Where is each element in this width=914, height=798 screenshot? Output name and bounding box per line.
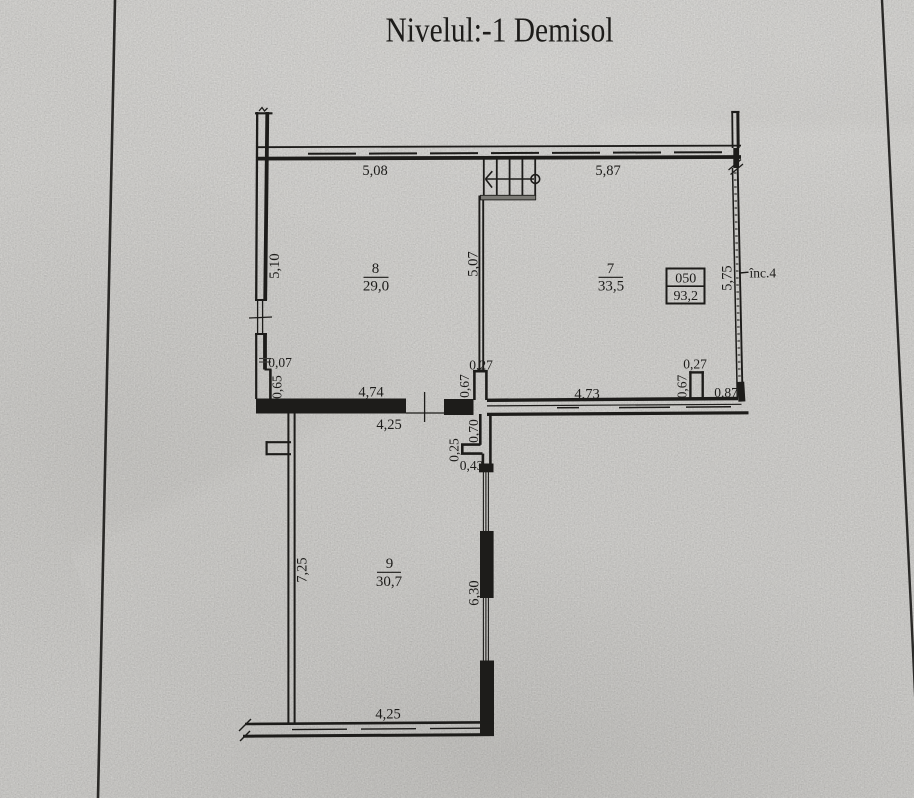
svg-text:0,67: 0,67 [457, 374, 472, 398]
svg-text:5,10: 5,10 [267, 253, 283, 278]
svg-text:050: 050 [675, 272, 696, 287]
svg-text:33,5: 33,5 [598, 279, 624, 295]
svg-text:0,27: 0,27 [469, 358, 493, 373]
svg-text:7,25: 7,25 [295, 557, 311, 582]
svg-text:5,07: 5,07 [466, 251, 482, 276]
svg-text:0,07: 0,07 [268, 355, 292, 370]
svg-text:4,74: 4,74 [358, 385, 384, 401]
svg-text:înc.4: înc.4 [749, 266, 777, 281]
svg-text:5,87: 5,87 [595, 163, 620, 179]
svg-text:5,75: 5,75 [720, 265, 736, 290]
svg-text:0,65: 0,65 [270, 375, 285, 399]
svg-text:5,08: 5,08 [362, 163, 387, 179]
svg-text:8: 8 [372, 261, 380, 277]
svg-text:0,67: 0,67 [675, 374, 690, 398]
svg-text:29,0: 29,0 [363, 279, 389, 295]
svg-text:30,7: 30,7 [376, 574, 403, 590]
svg-text:4,25: 4,25 [375, 707, 400, 723]
svg-text:9: 9 [386, 556, 394, 572]
svg-text:93,2: 93,2 [674, 289, 699, 304]
svg-text:Nivelul:-1 Demisol: Nivelul:-1 Demisol [386, 11, 614, 50]
svg-text:0,27: 0,27 [683, 357, 707, 372]
svg-text:4,73: 4,73 [574, 387, 599, 403]
svg-text:7: 7 [607, 261, 615, 277]
svg-text:4,25: 4,25 [376, 417, 401, 433]
svg-text:0,70: 0,70 [466, 419, 481, 443]
svg-text:0,87: 0,87 [714, 385, 738, 400]
svg-text:6,30: 6,30 [467, 580, 483, 605]
